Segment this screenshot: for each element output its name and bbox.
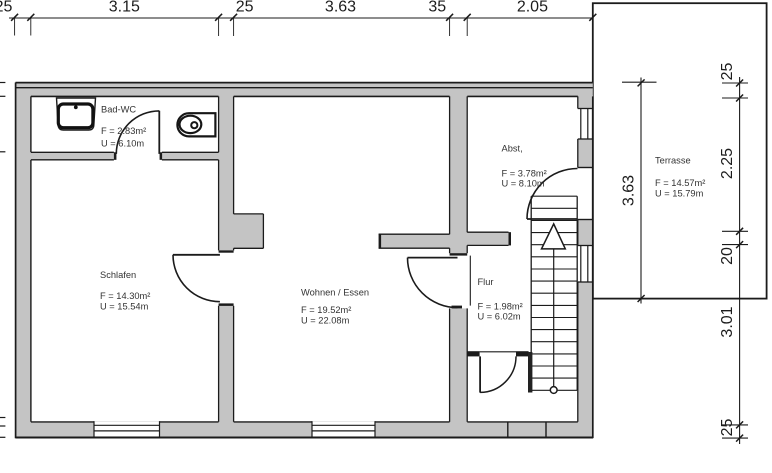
svg-text:Abst,: Abst, xyxy=(502,143,523,153)
svg-text:3.01: 3.01 xyxy=(719,306,736,337)
svg-text:25: 25 xyxy=(719,63,736,81)
svg-text:U = 15.79m: U = 15.79m xyxy=(655,188,704,198)
svg-text:Terrasse: Terrasse xyxy=(655,155,691,165)
svg-text:2.05: 2.05 xyxy=(517,0,548,16)
svg-text:3.15: 3.15 xyxy=(109,0,140,16)
svg-text:25: 25 xyxy=(0,0,13,16)
svg-text:25: 25 xyxy=(719,419,736,437)
svg-text:Wohnen / Essen: Wohnen / Essen xyxy=(301,288,369,298)
svg-text:3.63: 3.63 xyxy=(621,175,638,206)
svg-text:U = 8.10m: U = 8.10m xyxy=(502,178,545,188)
svg-text:U = 15.54m: U = 15.54m xyxy=(100,302,149,312)
svg-text:U = 6.02m: U = 6.02m xyxy=(478,312,521,322)
svg-text:35: 35 xyxy=(428,0,446,16)
svg-text:F = 2.83m²: F = 2.83m² xyxy=(101,126,146,136)
svg-text:F = 1.98m²: F = 1.98m² xyxy=(478,301,523,311)
svg-text:25: 25 xyxy=(236,0,254,16)
svg-text:20: 20 xyxy=(719,247,736,265)
svg-text:Flur: Flur xyxy=(478,277,494,287)
svg-text:3.63: 3.63 xyxy=(325,0,356,16)
svg-text:U = 6.10m: U = 6.10m xyxy=(101,138,144,148)
svg-text:F = 14.30m²: F = 14.30m² xyxy=(100,291,150,301)
svg-text:Bad-WC: Bad-WC xyxy=(101,105,136,115)
svg-text:Schlafen: Schlafen xyxy=(100,270,136,280)
svg-text:F = 3.78m²: F = 3.78m² xyxy=(502,168,547,178)
svg-text:2.25: 2.25 xyxy=(719,148,736,179)
svg-text:F = 19.52m²: F = 19.52m² xyxy=(301,305,351,315)
svg-text:U = 22.08m: U = 22.08m xyxy=(301,316,350,326)
svg-text:F = 14.57m²: F = 14.57m² xyxy=(655,178,705,188)
